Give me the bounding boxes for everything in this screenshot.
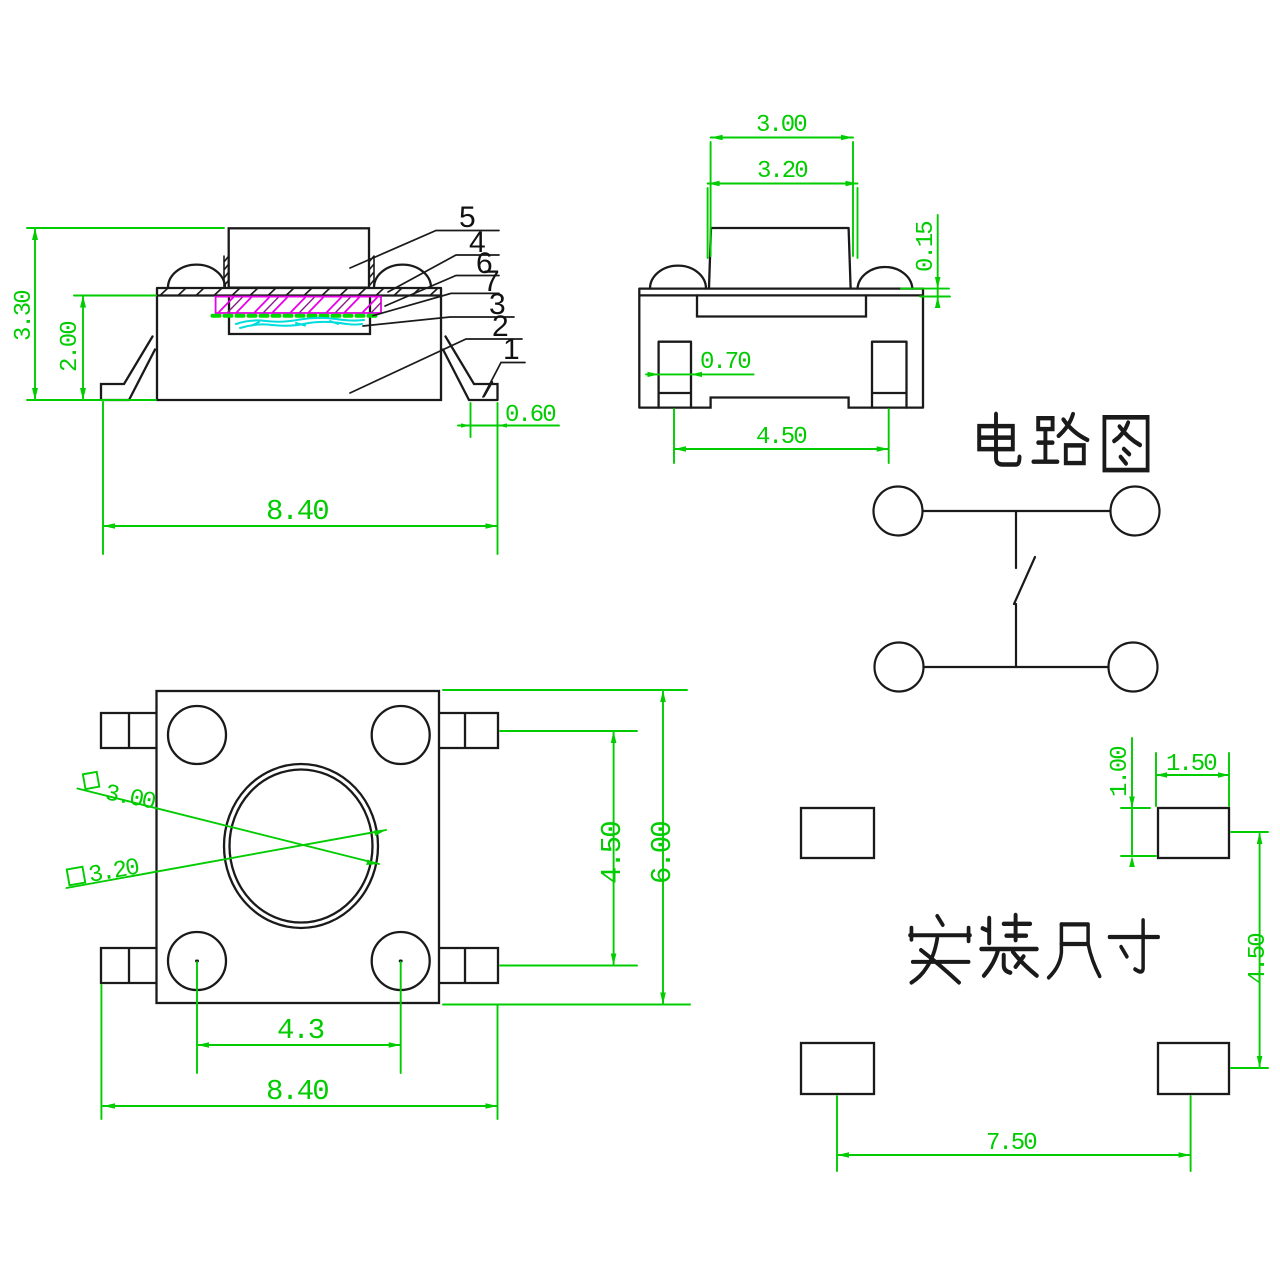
- svg-text:1.00: 1.00: [1107, 747, 1134, 797]
- svg-text:0.15: 0.15: [913, 222, 940, 272]
- svg-text:1.50: 1.50: [1166, 751, 1216, 778]
- svg-text:3.20: 3.20: [757, 158, 807, 185]
- svg-text:3.30: 3.30: [11, 291, 38, 341]
- svg-text:0.60: 0.60: [505, 402, 555, 429]
- svg-text:7.50: 7.50: [986, 1130, 1036, 1157]
- svg-text:1: 1: [503, 333, 520, 366]
- svg-text:6.00: 6.00: [646, 822, 679, 884]
- svg-text:8.40: 8.40: [266, 1075, 328, 1108]
- svg-text:4.50: 4.50: [1245, 934, 1272, 984]
- svg-text:4.3: 4.3: [277, 1014, 324, 1047]
- svg-text:4.50: 4.50: [596, 822, 629, 884]
- svg-text:2.00: 2.00: [57, 322, 84, 372]
- svg-text:0.70: 0.70: [700, 349, 750, 376]
- svg-text:4.50: 4.50: [756, 424, 806, 451]
- svg-text:3.00: 3.00: [756, 112, 806, 139]
- svg-text:8.40: 8.40: [266, 495, 328, 528]
